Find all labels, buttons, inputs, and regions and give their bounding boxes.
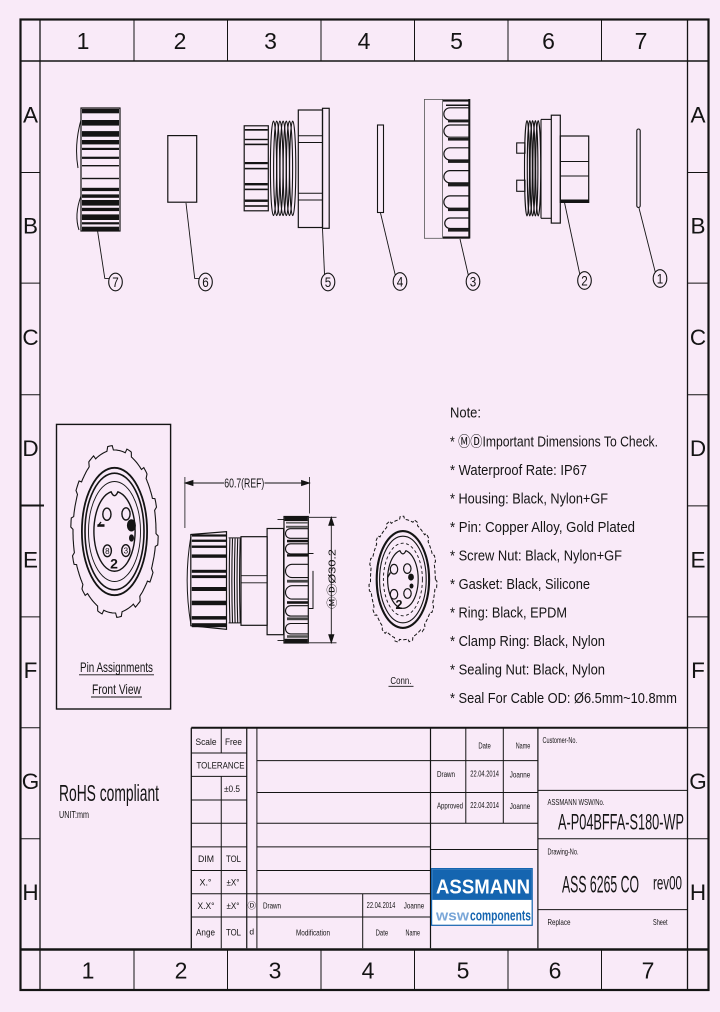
svg-text:3: 3 [470, 274, 477, 289]
svg-text:UNIT:mm: UNIT:mm [59, 809, 89, 821]
svg-text:Ange: Ange [196, 928, 215, 939]
svg-text:Conn.: Conn. [390, 676, 411, 687]
svg-text:Ⓓ: Ⓓ [248, 901, 257, 911]
svg-text:H: H [22, 880, 38, 905]
svg-text:A: A [23, 103, 38, 128]
svg-text:3: 3 [124, 547, 129, 556]
svg-text:4: 4 [358, 28, 371, 54]
svg-text:Drawn: Drawn [437, 769, 455, 779]
svg-text:6: 6 [202, 275, 209, 290]
svg-text:E: E [690, 547, 705, 572]
svg-text:Pin Assignments: Pin Assignments [80, 659, 153, 675]
svg-text:wsw: wsw [435, 909, 470, 925]
svg-text:* Sealing Nut: Black, Nylon: * Sealing Nut: Black, Nylon [450, 663, 605, 679]
svg-text:8: 8 [105, 547, 110, 556]
svg-text:ASSMANN: ASSMANN [436, 877, 530, 899]
svg-text:±X°: ±X° [227, 878, 240, 889]
svg-text:2: 2 [175, 958, 188, 984]
svg-text:Drawing-No.: Drawing-No. [548, 847, 579, 857]
svg-text:1: 1 [82, 958, 95, 984]
svg-text:Date: Date [376, 928, 389, 938]
svg-text:7: 7 [642, 958, 655, 984]
svg-text:ⓂⒹØ30.2: ⓂⒹØ30.2 [327, 549, 339, 609]
svg-text:Sheet: Sheet [653, 917, 668, 927]
svg-text:Joanne: Joanne [510, 802, 531, 811]
svg-text:* ⓂⒹImportant Dimensions To Ch: * ⓂⒹImportant Dimensions To Check. [450, 434, 658, 451]
svg-text:3: 3 [264, 28, 277, 54]
svg-text:6: 6 [542, 28, 555, 54]
svg-text:DIM: DIM [198, 854, 214, 865]
svg-text:3: 3 [269, 958, 282, 984]
svg-text:Scale: Scale [196, 737, 217, 748]
svg-text:RoHS compliant: RoHS compliant [59, 780, 159, 806]
svg-text:F: F [24, 658, 38, 683]
svg-text:* Gasket: Black, Silicone: * Gasket: Black, Silicone [450, 577, 590, 593]
svg-text:C: C [22, 325, 38, 350]
svg-text:* Ring: Black, EPDM: * Ring: Black, EPDM [450, 606, 567, 622]
svg-text:A-P04BFFA-S180-WP: A-P04BFFA-S180-WP [558, 810, 684, 835]
svg-text:C: C [690, 325, 706, 350]
svg-text:A: A [690, 103, 705, 128]
svg-text:Modification: Modification [296, 928, 330, 938]
svg-text:B: B [690, 214, 705, 239]
svg-text:TOL: TOL [226, 854, 241, 865]
svg-text:5: 5 [325, 275, 332, 290]
svg-text:H: H [690, 880, 706, 905]
svg-text:* Housing: Black, Nylon+GF: * Housing: Black, Nylon+GF [450, 492, 608, 508]
svg-text:7: 7 [635, 28, 648, 54]
svg-text:ASSMANN WSW/No.: ASSMANN WSW/No. [548, 797, 605, 807]
svg-text:2: 2 [174, 28, 187, 54]
svg-text:* Seal For Cable OD: Ø6.5mm~10: * Seal For Cable OD: Ø6.5mm~10.8mm [450, 691, 677, 707]
svg-text:5: 5 [450, 28, 463, 54]
svg-text:Customer-No.: Customer-No. [543, 735, 578, 745]
svg-text:Drawn: Drawn [263, 901, 281, 911]
svg-text:Date: Date [478, 741, 491, 751]
svg-text:ASS 6265 CO: ASS 6265 CO [562, 872, 639, 899]
svg-text:* Pin: Copper Alloy, Gold Plat: * Pin: Copper Alloy, Gold Plated [450, 520, 635, 536]
svg-text:* Screw Nut: Black, Nylon+GF: * Screw Nut: Black, Nylon+GF [450, 549, 622, 565]
svg-text:2: 2 [581, 273, 588, 288]
svg-text:components: components [470, 909, 531, 925]
svg-text:Note:: Note: [450, 406, 481, 422]
svg-text:Approved: Approved [437, 801, 463, 811]
svg-text:2: 2 [110, 556, 118, 572]
svg-text:D: D [690, 436, 706, 461]
svg-text:D: D [22, 436, 38, 461]
svg-text:X.°: X.° [200, 878, 212, 889]
svg-text:1: 1 [77, 28, 90, 54]
svg-text:Replace: Replace [548, 917, 571, 927]
svg-text:60.7(REF): 60.7(REF) [224, 475, 264, 490]
svg-text:Joanne: Joanne [510, 771, 531, 780]
svg-text:Name: Name [406, 928, 421, 938]
svg-text:X.X°: X.X° [198, 901, 215, 912]
svg-text:6: 6 [549, 958, 562, 984]
svg-text:TOL: TOL [226, 928, 241, 939]
svg-text:E: E [23, 547, 38, 572]
svg-text:4: 4 [362, 958, 375, 984]
svg-text:G: G [689, 769, 707, 794]
svg-text:Front View: Front View [92, 681, 142, 697]
svg-text:Name: Name [516, 741, 531, 751]
svg-text:±0.5: ±0.5 [224, 784, 240, 795]
svg-text:4: 4 [397, 274, 404, 289]
svg-text:±X°: ±X° [227, 901, 240, 912]
svg-text:2: 2 [396, 598, 403, 612]
svg-text:F: F [691, 658, 705, 683]
svg-text:* Clamp Ring: Black, Nylon: * Clamp Ring: Black, Nylon [450, 634, 605, 650]
svg-text:B: B [23, 214, 38, 239]
svg-text:22.04.2014: 22.04.2014 [470, 770, 499, 779]
svg-text:5: 5 [457, 958, 470, 984]
svg-text:d: d [249, 927, 254, 937]
svg-text:1: 1 [657, 271, 664, 286]
svg-text:22.04.2014: 22.04.2014 [470, 801, 499, 810]
svg-text:G: G [22, 769, 40, 794]
svg-text:Free: Free [225, 737, 242, 748]
svg-text:7: 7 [112, 275, 119, 290]
svg-text:TOLERANCE: TOLERANCE [197, 761, 245, 772]
svg-text:Joanne: Joanne [404, 902, 425, 911]
svg-text:22.04.2014: 22.04.2014 [367, 901, 396, 910]
svg-text:* Waterproof Rate: IP67: * Waterproof Rate: IP67 [450, 463, 587, 479]
svg-text:rev00: rev00 [653, 874, 682, 895]
